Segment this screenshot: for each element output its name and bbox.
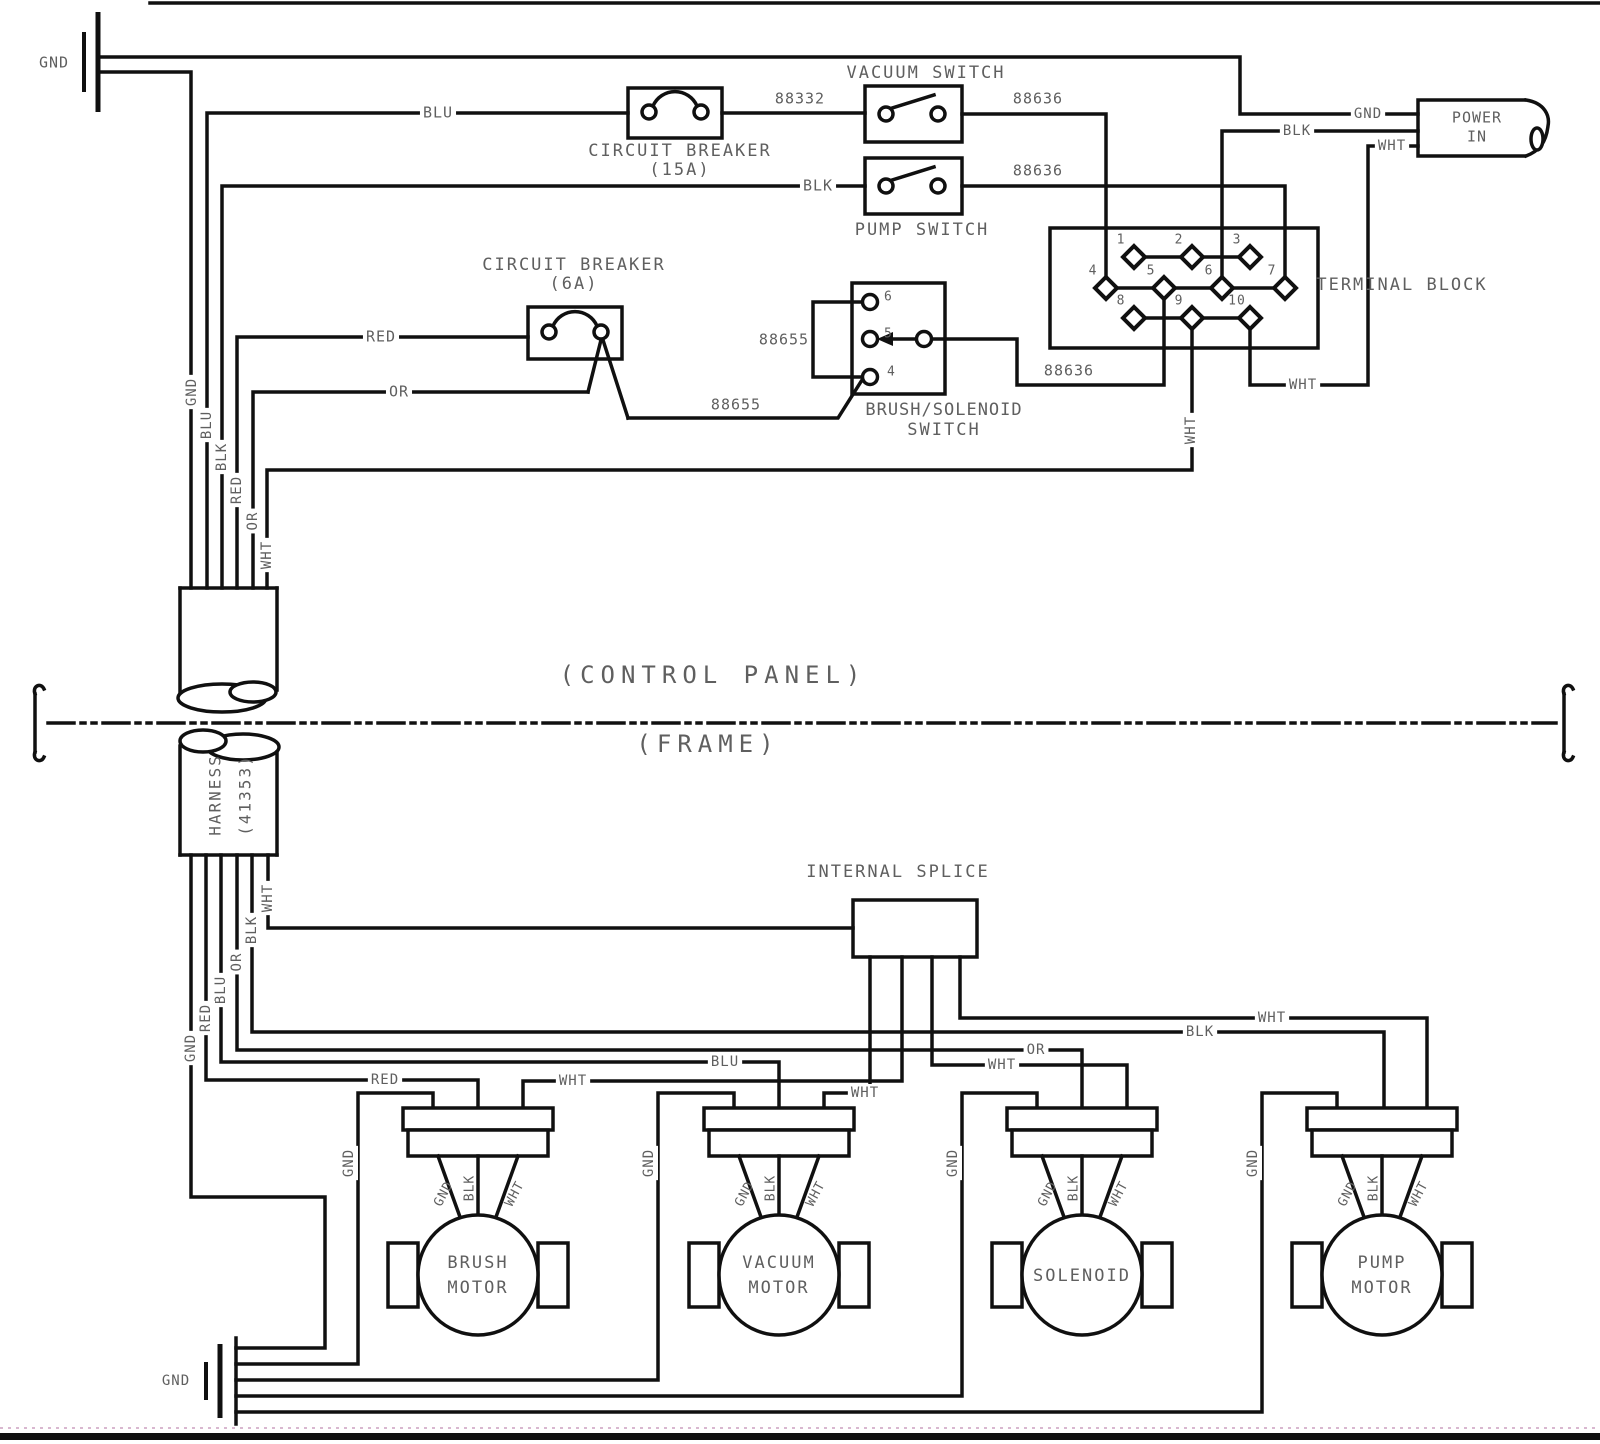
svg-text:BLK: BLK <box>463 1175 478 1201</box>
brush-motor-fan-label-wht: WHT <box>502 1179 528 1209</box>
harness-bottom-wht-label: WHT <box>259 881 277 915</box>
svg-text:6: 6 <box>884 290 893 305</box>
connector-lower <box>408 1130 548 1156</box>
harness-top-blk-label: BLK <box>213 440 231 474</box>
brush-motor-body <box>418 1215 538 1335</box>
wires-layer <box>98 3 1600 1424</box>
svg-text:3: 3 <box>1233 233 1242 248</box>
connector-upper <box>704 1108 854 1130</box>
svg-text:SOLENOID: SOLENOID <box>1033 1266 1131 1286</box>
terminal-5: 5 <box>1147 264 1175 300</box>
svg-text:MOTOR: MOTOR <box>748 1278 809 1298</box>
solenoid-gnd-wire-label: GND <box>944 1146 962 1180</box>
svg-text:OR: OR <box>245 512 261 531</box>
wire-88636-label-1: 88636 <box>1013 90 1063 108</box>
power-in-label-2: IN <box>1467 128 1487 146</box>
blu-wire-label: BLU <box>420 103 456 123</box>
svg-text:6: 6 <box>1205 264 1214 279</box>
ground-symbol-top <box>84 12 98 112</box>
circuit-breaker-15a <box>628 88 722 138</box>
frame-label: (FRAME) <box>636 730 779 758</box>
svg-text:88332: 88332 <box>775 90 825 108</box>
svg-text:INTERNAL SPLICE: INTERNAL SPLICE <box>806 862 990 882</box>
svg-text:88636: 88636 <box>1013 90 1063 108</box>
svg-text:(41353): (41353) <box>236 754 255 835</box>
svg-text:4: 4 <box>887 365 896 380</box>
switch-terminal-digit-4: 4 <box>887 365 896 380</box>
wire-blk-lower <box>252 855 1384 1108</box>
svg-text:GND: GND <box>1245 1149 1261 1177</box>
svg-text:RED: RED <box>198 1004 214 1032</box>
harness-top-red-label: RED <box>228 473 246 507</box>
switch-terminal-digit-6: 6 <box>884 290 893 305</box>
svg-text:1: 1 <box>1117 233 1126 248</box>
connector-lower <box>709 1130 849 1156</box>
pump-motor-gnd-wire-label: GND <box>1244 1146 1262 1180</box>
vacuum-motor-label-2: MOTOR <box>748 1278 809 1298</box>
svg-text:PUMP SWITCH: PUMP SWITCH <box>855 220 990 240</box>
harness-bottom-or-label: OR <box>228 950 246 975</box>
vacuum-motor: GNDBLKWHTGNDVACUUMMOTOR <box>236 1093 869 1380</box>
svg-text:GND: GND <box>641 1149 657 1177</box>
wht-wire-label-brush: WHT <box>556 1072 590 1090</box>
breaker-arc-icon <box>653 92 697 106</box>
circuit-breaker-6a-label-2: (6A) <box>550 274 599 294</box>
svg-text:WHT: WHT <box>988 1057 1016 1073</box>
wire-88636-label-3: 88636 <box>1044 362 1094 380</box>
pump-switch <box>865 158 962 214</box>
wiring-diagram-page: GNDBLKWHTGNDBRUSHMOTORGNDBLKWHTGNDVACUUM… <box>0 0 1600 1444</box>
svg-text:WHT: WHT <box>259 541 275 569</box>
wire-cb6a-diagonal-right <box>603 340 628 418</box>
blk-wire-label-pump: BLK <box>1183 1023 1217 1041</box>
svg-text:PUMP: PUMP <box>1358 1253 1407 1273</box>
svg-text:BLU: BLU <box>423 104 453 122</box>
pump-motor-body <box>1322 1215 1442 1335</box>
switch-bracket-88655 <box>813 302 862 377</box>
wire-red-top <box>237 337 528 588</box>
mount-left <box>689 1243 719 1307</box>
brush-motor-gnd-loop <box>236 1093 433 1364</box>
harness-lower-tube <box>180 730 279 855</box>
vacuum-motor-body <box>719 1215 839 1335</box>
svg-text:WHT: WHT <box>260 884 276 912</box>
terminal-4: 4 <box>1089 264 1117 300</box>
svg-text:OR: OR <box>229 953 245 972</box>
wire-blk-top <box>222 186 865 588</box>
terminal-number-9: 9 <box>1175 294 1184 309</box>
power-in-label-1: POWER <box>1452 109 1502 127</box>
terminal-9: 9 <box>1175 294 1203 330</box>
mount-right <box>1442 1243 1472 1307</box>
svg-text:(15A): (15A) <box>649 160 710 180</box>
svg-text:5: 5 <box>1147 264 1156 279</box>
svg-text:GND: GND <box>184 378 200 406</box>
pump-motor-fan-label-blk: BLK <box>1367 1175 1382 1201</box>
svg-text:GND: GND <box>945 1149 961 1177</box>
power-blk-label: BLK <box>1280 122 1314 140</box>
wht-wire-label-solenoid: WHT <box>985 1056 1019 1074</box>
connector-upper <box>403 1108 553 1130</box>
wht-wire-label-vacuum: WHT <box>848 1084 882 1102</box>
brush-motor: GNDBLKWHTGNDBRUSHMOTOR <box>236 1093 568 1364</box>
wire-blu-lower <box>221 855 779 1108</box>
svg-text:VACUUM SWITCH: VACUUM SWITCH <box>846 63 1005 83</box>
mount-right <box>538 1243 568 1307</box>
terminal-number-6: 6 <box>1205 264 1214 279</box>
blu-wire-label-vacuum: BLU <box>708 1053 742 1071</box>
svg-text:WHT: WHT <box>1378 138 1406 154</box>
harness-bottom-blk-label: BLK <box>243 913 261 947</box>
harness-label-2: (41353) <box>236 754 255 835</box>
wire-vacuum-switch-to-terminal-4 <box>962 114 1106 284</box>
svg-text:BLU: BLU <box>711 1054 739 1070</box>
terminal-number-2: 2 <box>1175 233 1184 248</box>
connector-lower <box>1312 1130 1452 1156</box>
svg-text:10: 10 <box>1228 294 1246 309</box>
svg-text:GND: GND <box>39 54 69 72</box>
vacuum-motor-gnd-wire-label: GND <box>640 1146 658 1180</box>
circuit-breaker-15a-label-2: (15A) <box>649 160 710 180</box>
power-gnd-label: GND <box>1351 105 1385 123</box>
mount-left <box>1292 1243 1322 1307</box>
vacuum-switch <box>865 86 962 142</box>
svg-text:GND: GND <box>162 1373 190 1389</box>
gnd-label-top-left: GND <box>39 54 69 72</box>
cable-hole-icon <box>1531 128 1543 150</box>
svg-text:BLK: BLK <box>1186 1024 1214 1040</box>
internal-splice-box <box>853 900 977 957</box>
svg-text:88636: 88636 <box>1044 362 1094 380</box>
svg-text:(6A): (6A) <box>550 274 599 294</box>
svg-text:2: 2 <box>1175 233 1184 248</box>
or-wire-label: OR <box>386 382 412 402</box>
brush-solenoid-switch-label-2: SWITCH <box>907 420 980 440</box>
svg-text:WHT: WHT <box>803 1179 829 1209</box>
connector-lower <box>1012 1130 1152 1156</box>
switch-terminal-digits: 654 <box>884 290 896 380</box>
svg-text:RED: RED <box>366 328 396 346</box>
break-symbol-left <box>34 685 44 760</box>
wire-88655-label-2: 88655 <box>711 396 761 414</box>
terminal-10: 10 <box>1228 294 1261 330</box>
terminal-number-7: 7 <box>1268 264 1277 279</box>
terminal-number-4: 4 <box>1089 264 1098 279</box>
wire-cb6a-diagonal-left <box>588 340 601 392</box>
svg-text:7: 7 <box>1268 264 1277 279</box>
harness-top-or-label: OR <box>244 509 262 534</box>
harness-bottom-gnd-label: GND <box>182 1031 200 1065</box>
wht-wire-label-pump: WHT <box>1255 1009 1289 1027</box>
svg-text:WHT: WHT <box>1406 1179 1432 1209</box>
terminal-8: 8 <box>1117 294 1145 330</box>
terminal-block-label: TERMINAL BLOCK <box>1316 275 1487 295</box>
harness-top-gnd-label: GND <box>183 375 201 409</box>
or-wire-label-solenoid: OR <box>1024 1041 1049 1059</box>
svg-text:BLK: BLK <box>1367 1175 1382 1201</box>
wire-88655-label-1: 88655 <box>759 331 809 349</box>
blk-wire-label: BLK <box>800 176 836 196</box>
brush-motor-gnd-wire-label: GND <box>340 1146 358 1180</box>
vacuum-motor-label-1: VACUUM <box>742 1253 815 1273</box>
svg-text:BLK: BLK <box>214 443 230 471</box>
svg-text:88655: 88655 <box>711 396 761 414</box>
svg-text:GND: GND <box>341 1149 357 1177</box>
svg-text:SWITCH: SWITCH <box>907 420 980 440</box>
wire-88332-label: 88332 <box>775 90 825 108</box>
wire-88636-label-2: 88636 <box>1013 162 1063 180</box>
terminal-number-10: 10 <box>1228 294 1246 309</box>
connector-upper <box>1007 1108 1157 1130</box>
harness-bottom-red-label: RED <box>197 1001 215 1035</box>
terminal-2: 2 <box>1175 233 1203 269</box>
svg-text:MOTOR: MOTOR <box>447 1278 508 1298</box>
svg-text:BRUSH: BRUSH <box>447 1253 508 1273</box>
breaker-arc-icon <box>553 312 597 326</box>
svg-text:WHT: WHT <box>559 1073 587 1089</box>
svg-text:HARNESS: HARNESS <box>206 754 225 835</box>
svg-text:(FRAME): (FRAME) <box>636 730 779 758</box>
svg-text:CIRCUIT BREAKER: CIRCUIT BREAKER <box>588 141 772 161</box>
switch-lever-icon <box>892 167 934 180</box>
svg-text:8: 8 <box>1117 294 1126 309</box>
switch-lever-icon <box>892 95 934 108</box>
brush-motor-fan-label-blk: BLK <box>463 1175 478 1201</box>
circuit-breaker-15a-label-1: CIRCUIT BREAKER <box>588 141 772 161</box>
svg-text:9: 9 <box>1175 294 1184 309</box>
harness-upper-tube <box>178 588 277 712</box>
svg-text:WHT: WHT <box>502 1179 528 1209</box>
svg-text:WHT: WHT <box>1106 1179 1132 1209</box>
terminal-block-terminals: 12345678910 <box>1089 233 1296 330</box>
svg-text:OR: OR <box>1027 1042 1046 1058</box>
svg-text:BLK: BLK <box>764 1175 779 1201</box>
svg-text:(CONTROL PANEL): (CONTROL PANEL) <box>560 661 867 689</box>
svg-text:4: 4 <box>1089 264 1098 279</box>
pump-motor-label-2: MOTOR <box>1351 1278 1412 1298</box>
page-bottom-border <box>0 1433 1600 1440</box>
internal-splice-label: INTERNAL SPLICE <box>806 862 990 882</box>
gnd-label-bottom-left: GND <box>162 1373 190 1389</box>
svg-text:BRUSH/SOLENOID: BRUSH/SOLENOID <box>865 400 1022 420</box>
svg-text:CIRCUIT BREAKER: CIRCUIT BREAKER <box>482 255 666 275</box>
terminal-3: 3 <box>1233 233 1261 269</box>
pump-motor-fan-label-wht: WHT <box>1406 1179 1432 1209</box>
svg-text:GND: GND <box>183 1034 199 1062</box>
wht-wire-label-t10: WHT <box>1286 376 1320 394</box>
svg-text:BLK: BLK <box>244 916 260 944</box>
ground-symbol-bottom <box>206 1344 220 1418</box>
wire-red-lower <box>206 855 478 1108</box>
terminal-number-8: 8 <box>1117 294 1126 309</box>
svg-text:VACUUM: VACUUM <box>742 1253 815 1273</box>
svg-text:GND: GND <box>1354 106 1382 122</box>
svg-text:RED: RED <box>371 1072 399 1088</box>
mount-right <box>839 1243 869 1307</box>
vacuum-switch-label: VACUUM SWITCH <box>846 63 1005 83</box>
harness-top-wht-label: WHT <box>258 538 276 572</box>
red-wire-label: RED <box>363 327 399 347</box>
harness-label-1: HARNESS <box>206 754 225 835</box>
power-wht-label: WHT <box>1375 137 1409 155</box>
svg-text:OR: OR <box>389 383 409 401</box>
brush-solenoid-switch-label-1: BRUSH/SOLENOID <box>865 400 1022 420</box>
svg-text:MOTOR: MOTOR <box>1351 1278 1412 1298</box>
break-symbol-right <box>1563 685 1573 760</box>
svg-text:WHT: WHT <box>1183 416 1199 444</box>
svg-text:BLK: BLK <box>803 177 833 195</box>
wiring-diagram: GNDBLKWHTGNDBRUSHMOTORGNDBLKWHTGNDVACUUM… <box>0 0 1600 1444</box>
svg-text:POWER: POWER <box>1452 109 1502 127</box>
solenoid-gnd-loop <box>236 1093 1037 1396</box>
mount-right <box>1142 1243 1172 1307</box>
terminal-number-1: 1 <box>1117 233 1126 248</box>
svg-text:88636: 88636 <box>1013 162 1063 180</box>
wht-vertical-label-t9: WHT <box>1182 413 1200 447</box>
mount-left <box>388 1243 418 1307</box>
wire-gnd-top <box>98 57 1418 114</box>
motors-layer: GNDBLKWHTGNDBRUSHMOTORGNDBLKWHTGNDVACUUM… <box>236 1093 1472 1412</box>
svg-text:WHT: WHT <box>1258 1010 1286 1026</box>
harness-top-blu-label: BLU <box>198 408 216 442</box>
svg-text:BLU: BLU <box>213 976 229 1004</box>
svg-text:BLU: BLU <box>199 411 215 439</box>
solenoid-label-1: SOLENOID <box>1033 1266 1131 1286</box>
brush-solenoid-switch <box>852 283 945 394</box>
connector-upper <box>1307 1108 1457 1130</box>
solenoid-fan-label-wht: WHT <box>1106 1179 1132 1209</box>
vacuum-motor-fan-label-blk: BLK <box>764 1175 779 1201</box>
wire-or-top <box>253 392 588 588</box>
wire-gnd-to-harness <box>98 72 191 588</box>
switch-terminal-digit-5: 5 <box>884 327 893 342</box>
svg-text:IN: IN <box>1467 128 1487 146</box>
svg-text:BLK: BLK <box>1283 123 1311 139</box>
control-panel-label: (CONTROL PANEL) <box>560 661 867 689</box>
pump-motor-label-1: PUMP <box>1358 1253 1407 1273</box>
brush-motor-label-2: MOTOR <box>447 1278 508 1298</box>
brush-motor-label-1: BRUSH <box>447 1253 508 1273</box>
wire-or-lower <box>237 855 1082 1108</box>
terminal-1: 1 <box>1117 233 1145 269</box>
svg-text:WHT: WHT <box>851 1085 879 1101</box>
pump-switch-label: PUMP SWITCH <box>855 220 990 240</box>
svg-text:TERMINAL BLOCK: TERMINAL BLOCK <box>1316 275 1487 295</box>
terminal-number-3: 3 <box>1233 233 1242 248</box>
terminal-number-5: 5 <box>1147 264 1156 279</box>
circuit-breaker-6a-label-1: CIRCUIT BREAKER <box>482 255 666 275</box>
svg-text:88655: 88655 <box>759 331 809 349</box>
wire-wht-to-splice <box>268 855 853 928</box>
svg-text:RED: RED <box>229 476 245 504</box>
solenoid-fan-label-blk: BLK <box>1067 1175 1082 1201</box>
vacuum-motor-fan-label-wht: WHT <box>803 1179 829 1209</box>
svg-text:5: 5 <box>884 327 893 342</box>
mount-left <box>992 1243 1022 1307</box>
terminal-7: 7 <box>1268 264 1296 300</box>
svg-text:WHT: WHT <box>1289 377 1317 393</box>
svg-text:BLK: BLK <box>1067 1175 1082 1201</box>
red-wire-label-brush: RED <box>368 1071 402 1089</box>
